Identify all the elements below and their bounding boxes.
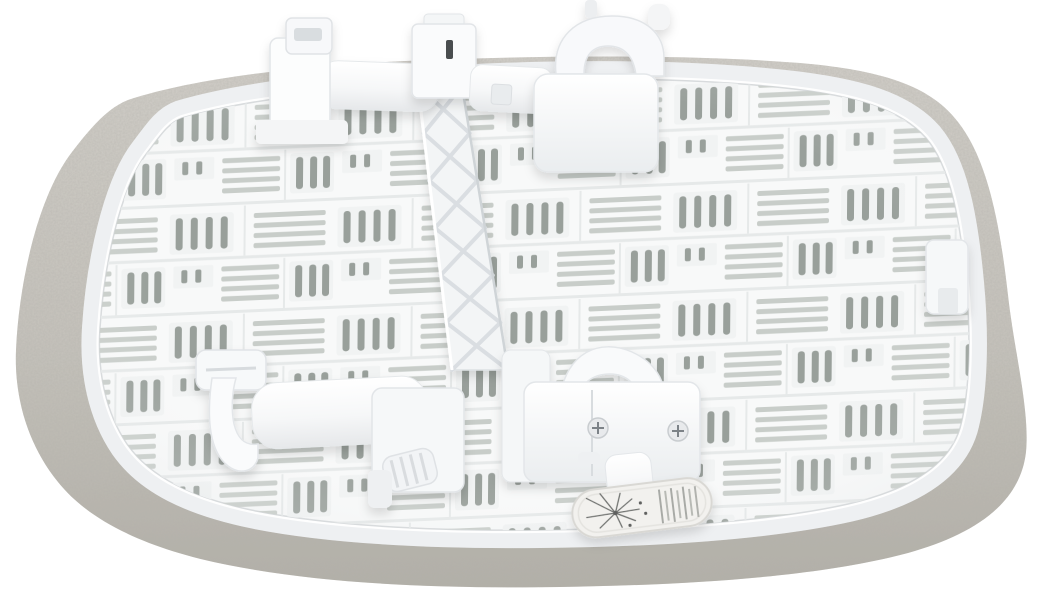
top-pin	[585, 0, 597, 18]
top-right-clamp-housing	[534, 74, 658, 172]
clamp-screw-right	[668, 421, 688, 441]
connector-recess	[491, 84, 512, 105]
top-left-clamp-base	[256, 120, 348, 144]
product-photo	[0, 0, 1044, 600]
clamp-peg	[578, 452, 600, 464]
photo-canvas	[0, 0, 1044, 600]
slider-slot	[446, 40, 453, 59]
clamp-nub	[648, 4, 670, 30]
clamp-screw-left	[588, 418, 608, 438]
right-edge-tab	[926, 240, 968, 314]
knob-foot	[368, 470, 392, 508]
